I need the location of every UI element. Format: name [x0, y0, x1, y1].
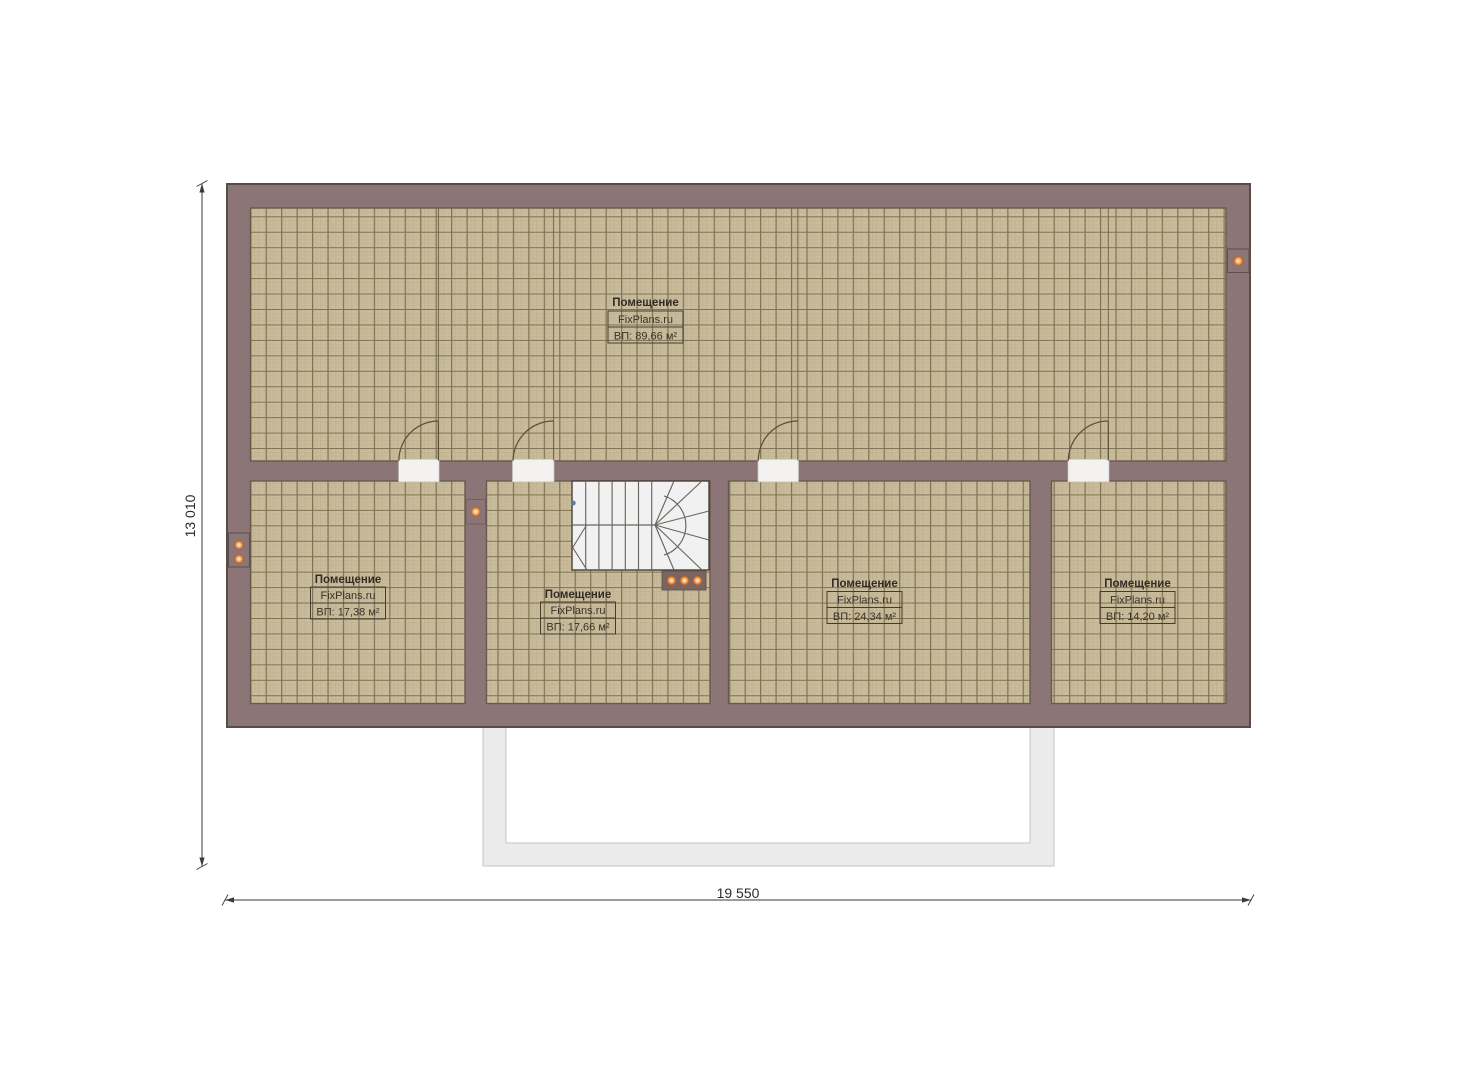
svg-text:Помещение: Помещение: [612, 297, 679, 309]
svg-text:Помещение: Помещение: [831, 578, 898, 590]
svg-text:19 550: 19 550: [717, 885, 760, 901]
svg-text:FixPlans.ru: FixPlans.ru: [618, 314, 673, 326]
svg-text:Помещение: Помещение: [545, 589, 612, 601]
svg-text:FixPlans.ru: FixPlans.ru: [1110, 595, 1165, 607]
svg-text:ВП: 24,34 м²: ВП: 24,34 м²: [833, 611, 897, 623]
svg-text:FixPlans.ru: FixPlans.ru: [320, 590, 375, 602]
svg-text:13 010: 13 010: [182, 494, 198, 537]
svg-text:ВП: 17,38 м²: ВП: 17,38 м²: [316, 607, 380, 619]
svg-text:Помещение: Помещение: [1104, 578, 1171, 590]
svg-text:Помещение: Помещение: [315, 574, 382, 586]
svg-text:ВП: 17,66 м²: ВП: 17,66 м²: [546, 622, 610, 634]
svg-text:FixPlans.ru: FixPlans.ru: [837, 595, 892, 607]
svg-text:FixPlans.ru: FixPlans.ru: [550, 605, 605, 617]
svg-text:ВП: 14,20 м²: ВП: 14,20 м²: [1106, 611, 1170, 623]
svg-text:ВП: 89,66 м²: ВП: 89,66 м²: [614, 331, 678, 343]
